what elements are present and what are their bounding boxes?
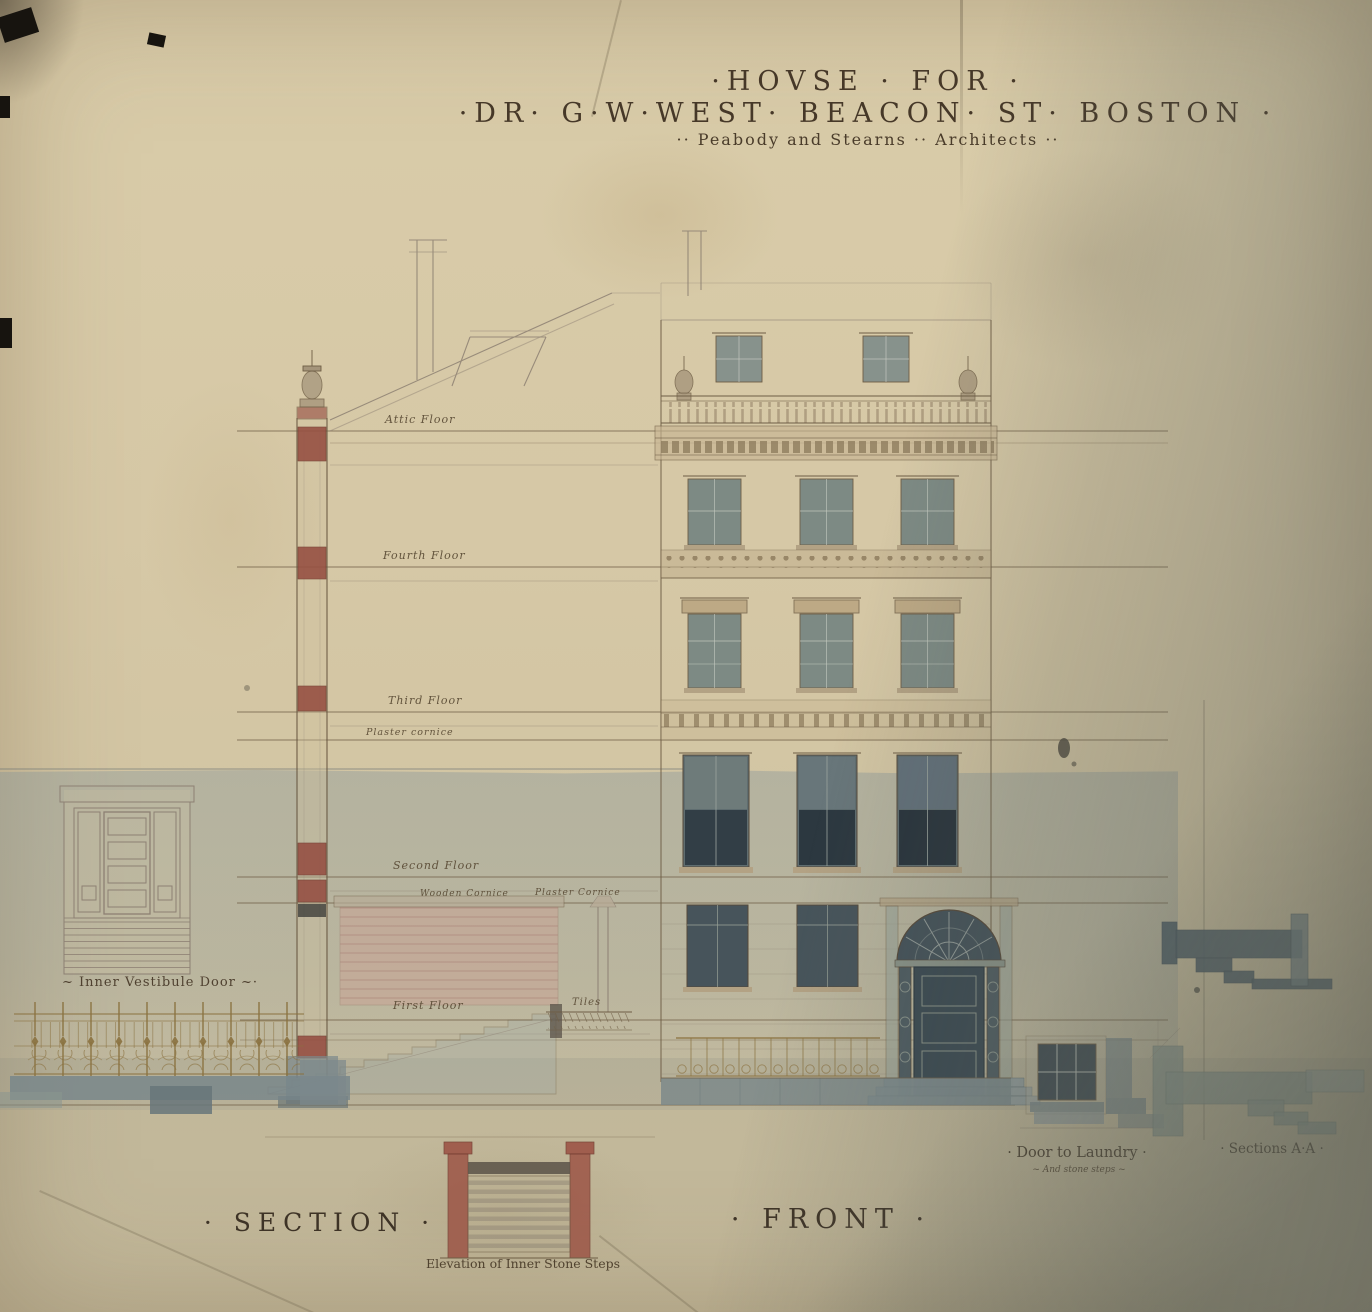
sheet-title-line1: ·HOVSE · FOR · xyxy=(711,66,1025,97)
label-section-aa: · Sections A·A · xyxy=(1220,1141,1324,1157)
drawing-sheet: ·HOVSE · FOR · ·DR· G·W·WEST· BEACON· ST… xyxy=(0,0,1372,1312)
label-door-to-laundry: · Door to Laundry · xyxy=(1007,1145,1147,1161)
front-frieze-band xyxy=(661,550,991,578)
front-areaway-railing xyxy=(676,1038,880,1076)
label-fourth-floor: Fourth Floor xyxy=(383,549,466,562)
front-balustrade xyxy=(661,396,991,423)
inner-stone-steps-detail xyxy=(440,1142,598,1258)
section-second-floor-wall xyxy=(334,896,616,1012)
front-main-cornice xyxy=(655,426,997,460)
front-second-floor-windows xyxy=(679,753,962,873)
section-aa-lower-profile xyxy=(1150,1020,1364,1136)
front-plaster-cornice-band xyxy=(661,700,991,740)
label-third-floor: Third Floor xyxy=(388,694,462,707)
label-section-view: · SECTION · xyxy=(204,1208,436,1237)
label-attic-floor: Attic Floor xyxy=(385,413,455,426)
label-plaster-cornice: Plaster cornice xyxy=(366,727,454,738)
label-inner-stone-steps: Elevation of Inner Stone Steps xyxy=(426,1256,620,1271)
sheet-title-line2: ·DR· G·W·WEST· BEACON· ST· BOSTON · xyxy=(459,98,1278,129)
drawing-linework xyxy=(0,0,1372,1312)
label-front-view: · FRONT · xyxy=(731,1204,931,1235)
label-wooden-cornice: Wooden Cornice xyxy=(420,889,509,899)
sheet-title-architects: ·· Peabody and Stearns ·· Architects ·· xyxy=(677,130,1060,149)
section-urn-finial xyxy=(297,350,327,419)
front-stone-base xyxy=(661,1078,1011,1105)
inner-vestibule-door-detail xyxy=(60,786,194,974)
section-aa-upper-profile xyxy=(1162,914,1332,993)
label-first-floor: First Floor xyxy=(393,999,464,1012)
section-roof-and-chimneys xyxy=(330,231,707,431)
front-entrance-door xyxy=(868,898,1040,1105)
front-attic-windows xyxy=(712,333,913,382)
front-third-floor-windows xyxy=(680,598,962,693)
iron-fence-detail xyxy=(0,1002,350,1114)
label-tiles: Tiles xyxy=(572,997,601,1008)
section-tile-floor xyxy=(546,1012,632,1030)
label-inner-vestibule-door: ~ Inner Vestibule Door ~· xyxy=(62,975,258,990)
door-to-laundry-detail xyxy=(1020,1036,1164,1128)
label-plaster-cornice-2: Plaster Cornice xyxy=(535,888,621,898)
label-second-floor: Second Floor xyxy=(393,859,479,872)
label-door-to-laundry-sub: ~ And stone steps ~ xyxy=(1032,1165,1125,1175)
front-fourth-floor-windows xyxy=(683,476,959,550)
section-front-wall xyxy=(297,418,327,1078)
